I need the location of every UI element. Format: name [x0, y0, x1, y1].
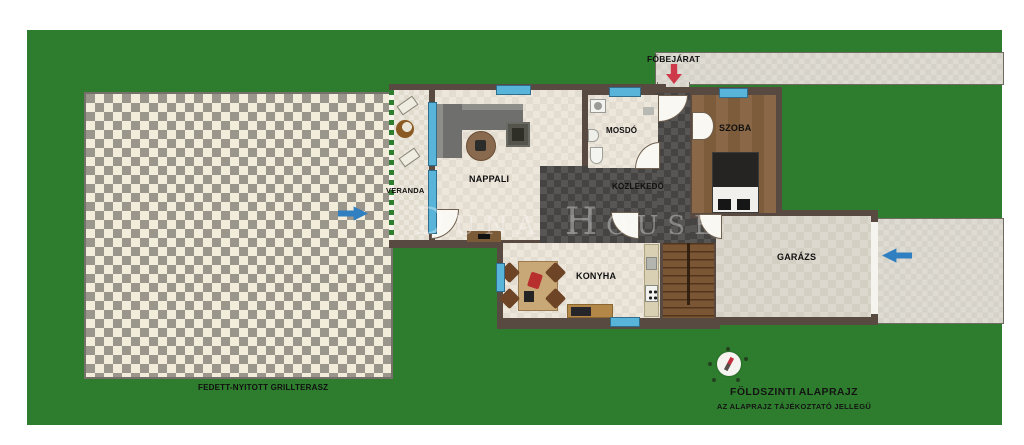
coffee-table-item [475, 140, 486, 151]
garage-driveway [877, 218, 1004, 324]
plan-disclaimer: AZ ALAPRAJZ TÁJÉKOZTATÓ JELLEGŰ [684, 402, 904, 411]
stove [645, 285, 658, 302]
washer-drum [594, 102, 602, 110]
bedroom-label: SZOBA [719, 124, 752, 133]
washing-machine [590, 99, 606, 113]
table-item-dark [524, 291, 534, 302]
kitchen-island [567, 304, 613, 318]
toilet [590, 147, 603, 164]
garage-door-opening [871, 222, 878, 314]
window [496, 85, 531, 95]
tv-cabinet [467, 231, 501, 242]
kitchen-counter [644, 244, 659, 317]
compass-dot [744, 357, 748, 361]
kitchen-island-module [571, 307, 591, 316]
bathroom-sink [588, 129, 599, 142]
living-room-label: NAPPALI [469, 175, 509, 184]
window [609, 87, 641, 97]
veranda-label: VERANDA [386, 187, 425, 195]
plan-title: FÖLDSZINTI ALAPRAJZ [684, 386, 904, 398]
room-hallway [540, 166, 660, 243]
coffee-table [466, 131, 496, 161]
sofa-chaise [437, 104, 462, 158]
radiator [643, 107, 654, 115]
fireplace [506, 122, 530, 147]
room-garage [716, 216, 871, 317]
compass-needle [724, 357, 734, 371]
compass-dot [726, 347, 730, 351]
compass-icon [717, 352, 741, 376]
bed-blanket [713, 153, 758, 187]
pillow [718, 199, 731, 210]
tv-icon [478, 234, 490, 239]
floor-plan: FEDETT-NYITOTT GRILLTERASZ [0, 0, 1024, 445]
compass-dot [708, 362, 712, 366]
potted-plant [396, 120, 414, 138]
window [428, 170, 437, 234]
table-item-red [527, 272, 543, 290]
grill-terrace: FEDETT-NYITOTT GRILLTERASZ [84, 92, 393, 379]
window [496, 263, 505, 292]
compass-dot [712, 378, 716, 382]
terrace-label: FEDETT-NYITOTT GRILLTERASZ [198, 384, 328, 392]
window [719, 88, 748, 98]
window [428, 102, 437, 166]
bedroom-door [692, 112, 714, 140]
fireplace-core [512, 128, 524, 141]
kitchen-label: KONYHA [576, 272, 616, 281]
bed [712, 152, 759, 213]
veranda-awning-trim [389, 90, 394, 240]
staircase-divider [687, 243, 690, 305]
main-entrance-label: FŐBEJÁRAT [647, 55, 700, 64]
hallway-label: KÖZLEKEDŐ [612, 183, 664, 191]
staircase [663, 243, 714, 318]
washroom-label: MOSDÓ [606, 127, 637, 135]
window [610, 317, 640, 327]
kitchen-sink [646, 257, 657, 270]
garage-label: GARÁZS [777, 253, 816, 262]
compass-dot [736, 378, 740, 382]
room-veranda [389, 90, 429, 240]
entrance-walkway [655, 52, 1004, 85]
pillow [737, 199, 750, 210]
